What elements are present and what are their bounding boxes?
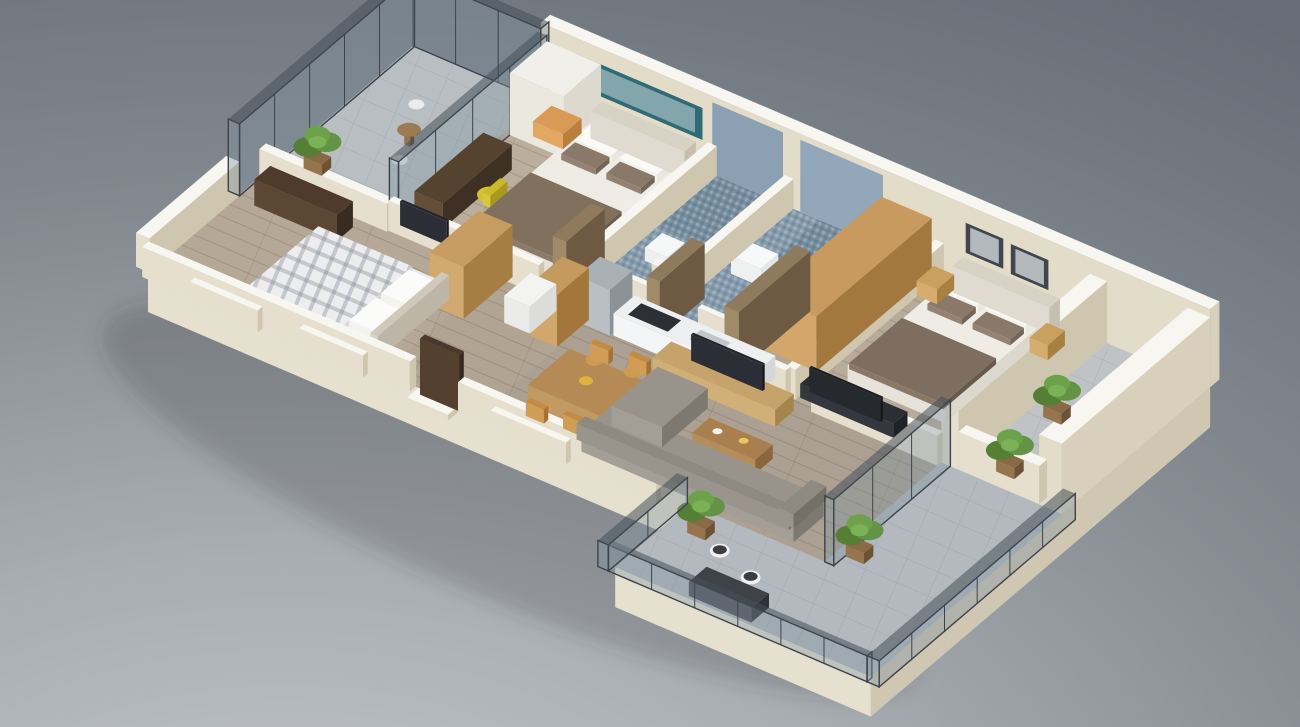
floorplan-3d-render [0, 0, 1300, 727]
apartment-3d-scene [0, 0, 1300, 727]
scene-root [136, 0, 1219, 717]
dining-flowers [579, 376, 593, 385]
wicker-chair-2-cushion [744, 572, 758, 581]
coffee-dish-white [712, 428, 722, 434]
wicker-chair-1-cushion [713, 545, 727, 554]
balcony-chair-1 [408, 99, 424, 109]
coffee-dish-yellow [739, 438, 749, 444]
